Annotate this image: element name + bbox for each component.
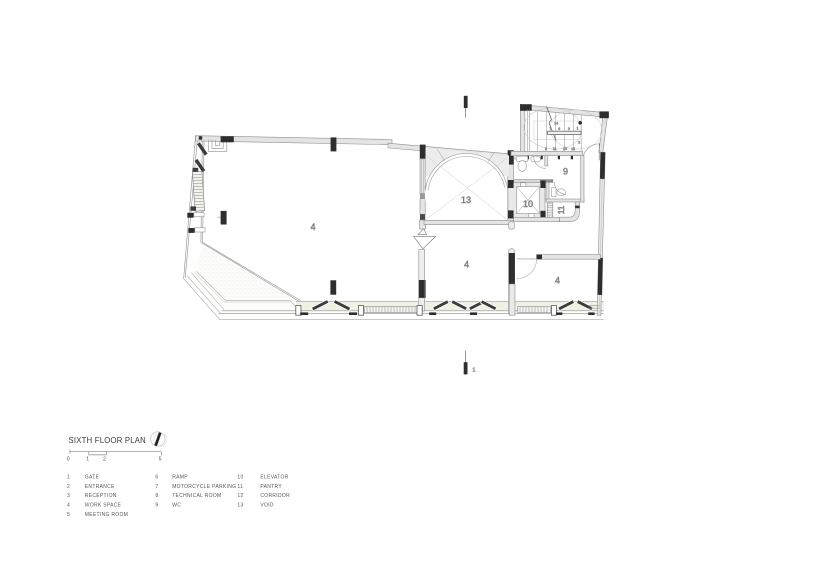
svg-text:WC: WC: [172, 503, 181, 509]
svg-text:VOID: VOID: [260, 503, 274, 509]
svg-text:10: 10: [523, 199, 533, 209]
svg-text:15: 15: [563, 147, 567, 151]
svg-text:PANTRY: PANTRY: [260, 484, 282, 490]
svg-text:3: 3: [67, 493, 70, 499]
svg-text:18: 18: [571, 147, 575, 151]
svg-text:5: 5: [159, 457, 162, 463]
svg-text:RECEPTION: RECEPTION: [85, 493, 117, 499]
svg-text:7: 7: [549, 127, 551, 131]
svg-text:4: 4: [310, 222, 315, 232]
svg-text:WORK SPACE: WORK SPACE: [85, 503, 122, 509]
svg-text:6: 6: [155, 474, 158, 480]
svg-text:0: 0: [67, 457, 70, 463]
svg-text:12: 12: [237, 493, 243, 499]
svg-text:MOTORCYCLE PARKING: MOTORCYCLE PARKING: [172, 484, 236, 490]
svg-text:4: 4: [555, 276, 560, 286]
svg-text:RAMP: RAMP: [172, 474, 188, 480]
svg-text:9: 9: [563, 167, 568, 177]
svg-text:11: 11: [553, 147, 557, 151]
svg-text:MEETING ROOM: MEETING ROOM: [85, 512, 128, 518]
svg-text:10: 10: [237, 474, 243, 480]
svg-text:4: 4: [464, 260, 469, 270]
svg-text:11: 11: [556, 205, 566, 214]
svg-text:SIXTH FLOOR PLAN: SIXTH FLOOR PLAN: [69, 435, 147, 445]
svg-text:2: 2: [103, 457, 106, 463]
svg-text:1: 1: [67, 474, 70, 480]
svg-text:7: 7: [155, 484, 158, 490]
svg-text:6: 6: [558, 127, 560, 131]
svg-text:1: 1: [577, 127, 579, 131]
svg-text:1: 1: [472, 367, 475, 373]
svg-text:11: 11: [237, 484, 243, 490]
svg-text:14: 14: [554, 122, 558, 126]
svg-text:2: 2: [67, 484, 70, 490]
svg-text:4: 4: [67, 503, 70, 509]
svg-text:ENTRANCE: ENTRANCE: [85, 484, 115, 490]
svg-text:13: 13: [237, 503, 243, 509]
svg-text:3: 3: [568, 127, 570, 131]
svg-text:1: 1: [86, 457, 89, 463]
svg-text:GATE: GATE: [85, 474, 100, 480]
svg-text:TECHNICAL ROOM: TECHNICAL ROOM: [172, 493, 221, 499]
svg-text:CORRIDOR: CORRIDOR: [260, 493, 290, 499]
svg-text:13: 13: [461, 195, 471, 205]
svg-text:8: 8: [545, 147, 547, 151]
svg-text:2: 2: [578, 140, 580, 144]
svg-text:ELEVATOR: ELEVATOR: [260, 474, 288, 480]
svg-text:5: 5: [67, 512, 70, 518]
svg-text:8: 8: [155, 493, 158, 499]
svg-text:9: 9: [155, 503, 158, 509]
